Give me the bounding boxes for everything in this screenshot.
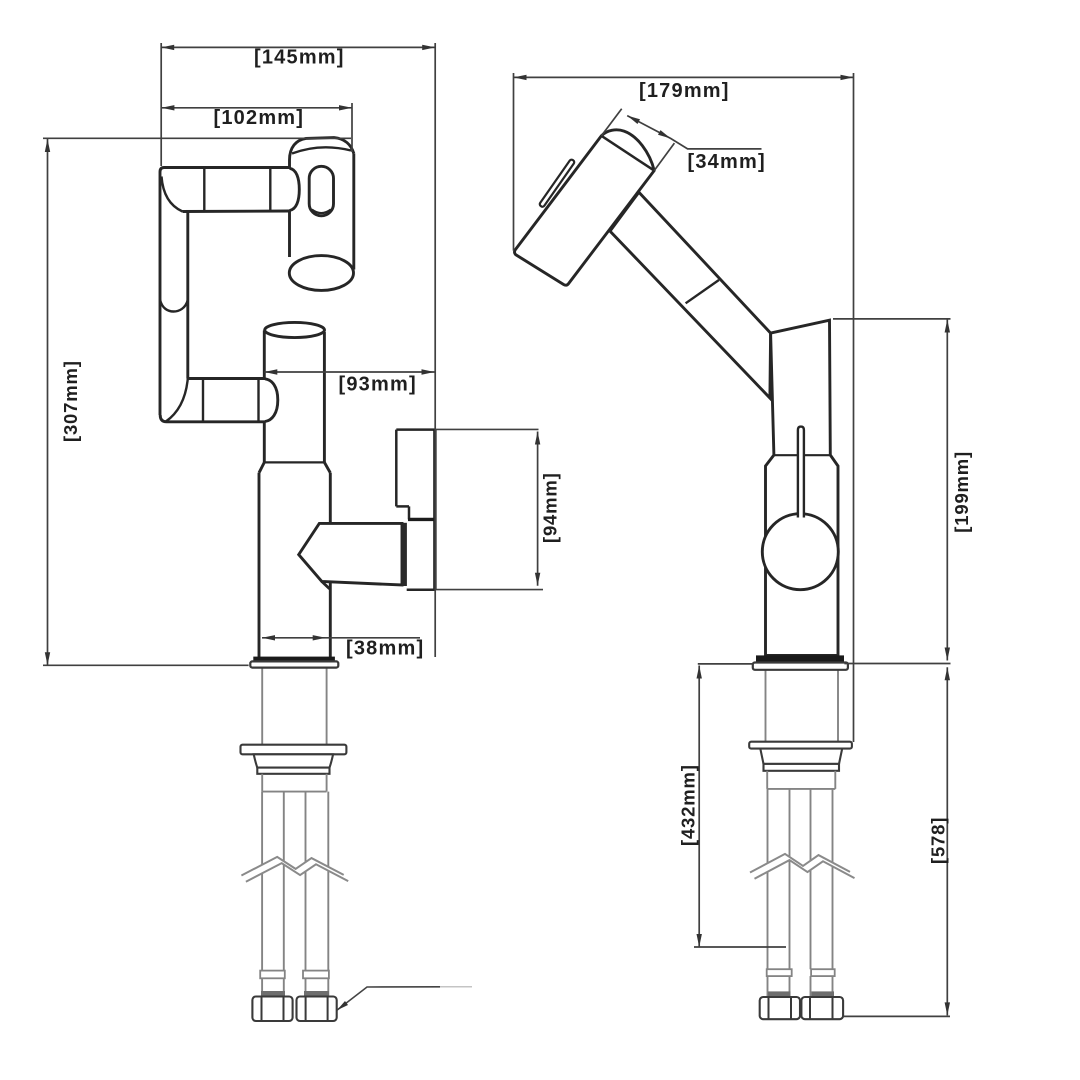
svg-text:[179mm]: [179mm] — [639, 80, 730, 102]
svg-text:[578]: [578] — [928, 817, 949, 864]
svg-text:[93mm]: [93mm] — [339, 374, 417, 396]
svg-text:[145mm]: [145mm] — [254, 46, 345, 68]
svg-text:[102mm]: [102mm] — [214, 107, 305, 129]
svg-text:[38mm]: [38mm] — [346, 638, 424, 660]
svg-text:[34mm]: [34mm] — [688, 151, 766, 173]
svg-text:[307mm]: [307mm] — [60, 360, 81, 442]
svg-text:[432mm]: [432mm] — [678, 764, 699, 846]
svg-text:[199mm]: [199mm] — [951, 451, 972, 533]
svg-text:[94mm]: [94mm] — [540, 472, 561, 543]
